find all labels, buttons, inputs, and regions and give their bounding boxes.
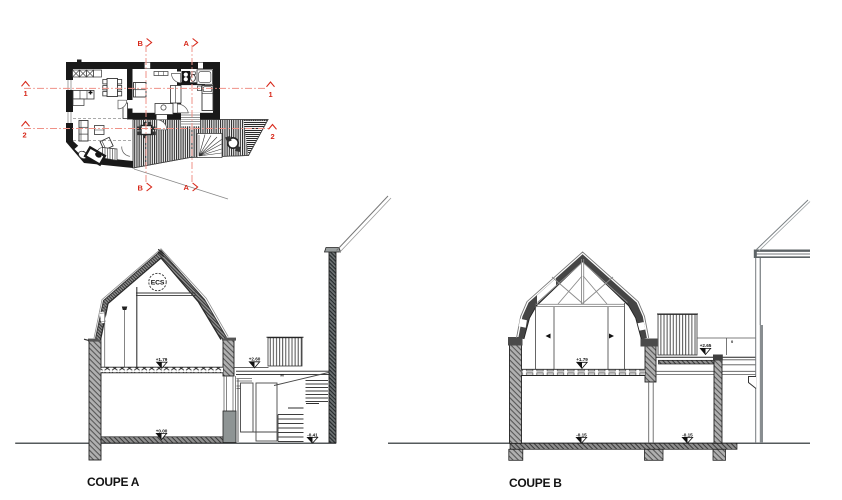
svg-text:1: 1 — [269, 90, 273, 99]
svg-text:-0.41: -0.41 — [307, 432, 318, 437]
svg-text:+2.65: +2.65 — [700, 343, 712, 348]
svg-text:COUPE A: COUPE A — [87, 475, 140, 489]
svg-text:-0.15: -0.15 — [682, 432, 693, 437]
svg-text:+1.79: +1.79 — [156, 357, 168, 362]
svg-text:+1.79: +1.79 — [576, 357, 588, 362]
svg-text:+0.00: +0.00 — [156, 428, 168, 433]
svg-text:B: B — [138, 184, 144, 193]
svg-text:ECS: ECS — [151, 280, 165, 287]
svg-text:A: A — [184, 39, 190, 48]
svg-text:+2.60: +2.60 — [249, 356, 261, 361]
svg-text:2: 2 — [23, 131, 27, 140]
svg-text:COUPE B: COUPE B — [509, 476, 562, 490]
svg-text:-0.15: -0.15 — [576, 432, 587, 437]
svg-text:1: 1 — [24, 89, 28, 98]
svg-text:B: B — [138, 39, 144, 48]
svg-text:2: 2 — [271, 132, 275, 141]
svg-text:A: A — [184, 183, 190, 192]
